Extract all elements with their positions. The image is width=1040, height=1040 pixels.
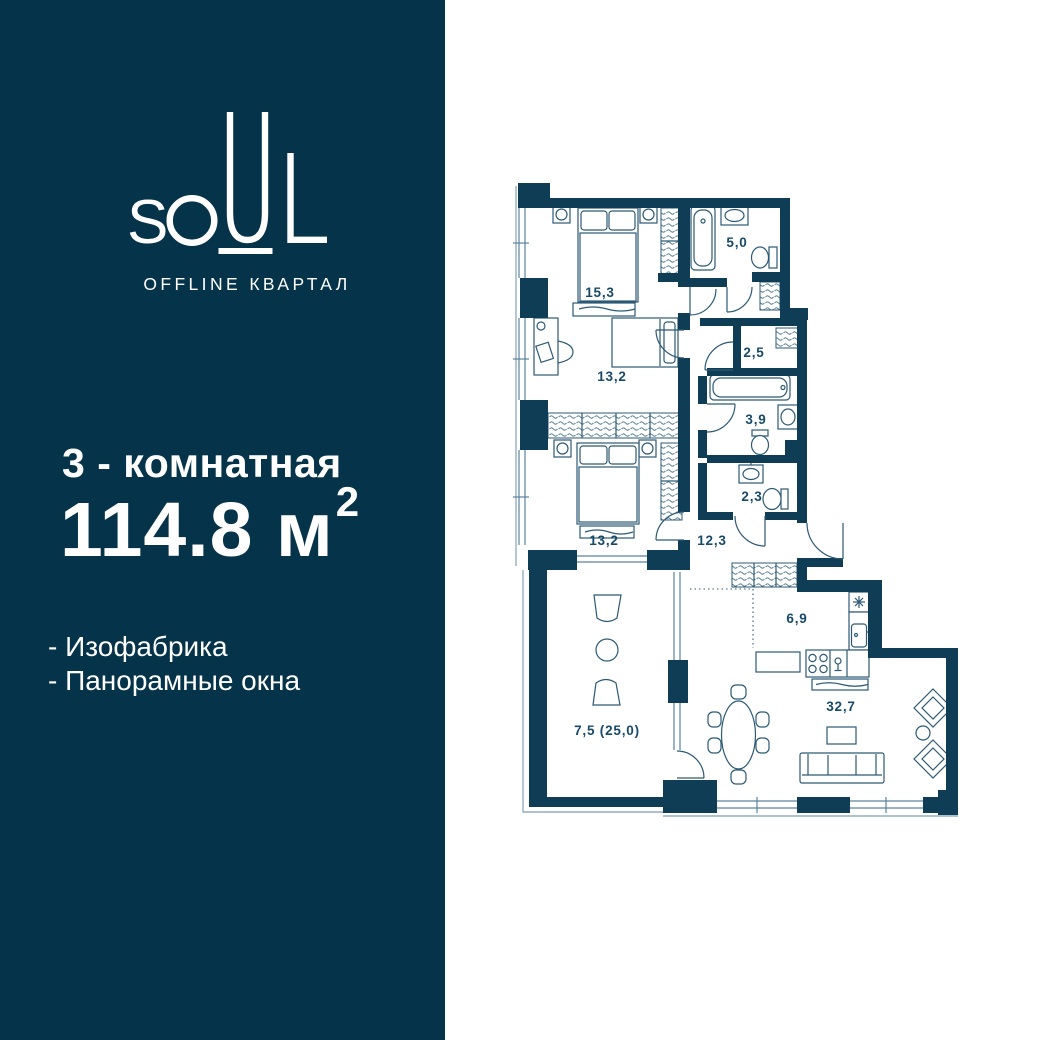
room-label-room-middle: 13,2 <box>597 369 626 384</box>
door-terrace <box>677 751 704 778</box>
armchair <box>594 595 621 622</box>
room-label-wc: 2,3 <box>741 489 762 504</box>
armchair <box>593 680 620 706</box>
door-bathroom-top <box>727 287 752 312</box>
room-label-bathroom-top: 5,0 <box>726 235 747 250</box>
living-furniture <box>800 689 952 783</box>
sofa <box>800 753 884 783</box>
dining-furniture <box>708 685 769 784</box>
room-label-terrace: 7,5 (25,0) <box>574 723 640 738</box>
bedroom-lower-furniture <box>554 440 656 538</box>
toilet <box>781 489 788 509</box>
toilet <box>769 247 777 268</box>
kitchen-zone-boundary <box>690 589 753 648</box>
room-label-living: 32,7 <box>826 699 855 714</box>
room-label-bedroom-lower: 13,2 <box>589 533 618 548</box>
apartment-poster: S OFFLINE КВАРТАЛ 3 - комнатная 114.8 м2… <box>0 0 1040 1040</box>
side-table <box>916 726 930 740</box>
door-entrance <box>807 523 843 559</box>
single-bed <box>612 318 678 367</box>
room-label-bedroom-top: 15,3 <box>585 285 614 300</box>
floor-plan: 15,3 5,0 13,2 2,5 3,9 2,3 13,2 12,3 6,9 … <box>0 0 1040 1040</box>
room-middle-furniture <box>534 318 678 375</box>
door-bathroom-middle <box>707 404 735 432</box>
door-wc <box>735 516 765 546</box>
double-bed <box>577 443 639 524</box>
room-label-kitchen: 6,9 <box>786 611 807 626</box>
cabinet <box>756 652 800 672</box>
round-table <box>596 639 618 661</box>
room-label-closet: 2,5 <box>743 345 764 360</box>
kitchen-furniture <box>756 592 872 690</box>
door-closet <box>705 342 733 370</box>
bathtub <box>710 375 790 400</box>
coffee-table <box>827 727 856 744</box>
door-bedroom-top <box>690 287 716 315</box>
terrace-furniture <box>593 595 621 705</box>
dresser <box>573 303 635 316</box>
room-label-bathroom-middle: 3,9 <box>745 412 766 427</box>
chair <box>558 341 573 363</box>
room-label-hall: 12,3 <box>697 533 726 548</box>
dining-table <box>722 701 756 769</box>
